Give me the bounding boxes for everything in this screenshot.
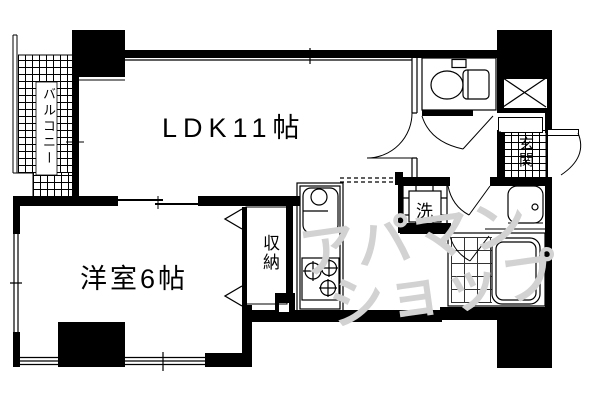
- entrance-door-arc: [561, 133, 581, 175]
- ldk-label: LDK11帖: [162, 106, 306, 145]
- toilet-icon: [422, 58, 496, 110]
- sliding-door: [118, 196, 198, 209]
- ldk-east-wall: [412, 58, 417, 186]
- entrance-label: 玄関: [515, 136, 536, 168]
- closet-label: 収納: [257, 234, 282, 272]
- x-shaft-icon: [503, 78, 546, 107]
- western-room-label: 洋室6帖: [80, 257, 188, 296]
- toilet-door-swing: [422, 116, 493, 149]
- balcony-label: バルコニー: [39, 87, 58, 167]
- floor-plan: LDK11帖 洋室6帖 バルコニー 収納 玄関 洗 アパマン ショップ: [0, 0, 600, 400]
- ldk-door-arc: [367, 113, 412, 158]
- kitchen-dashed-boundary: [340, 178, 397, 182]
